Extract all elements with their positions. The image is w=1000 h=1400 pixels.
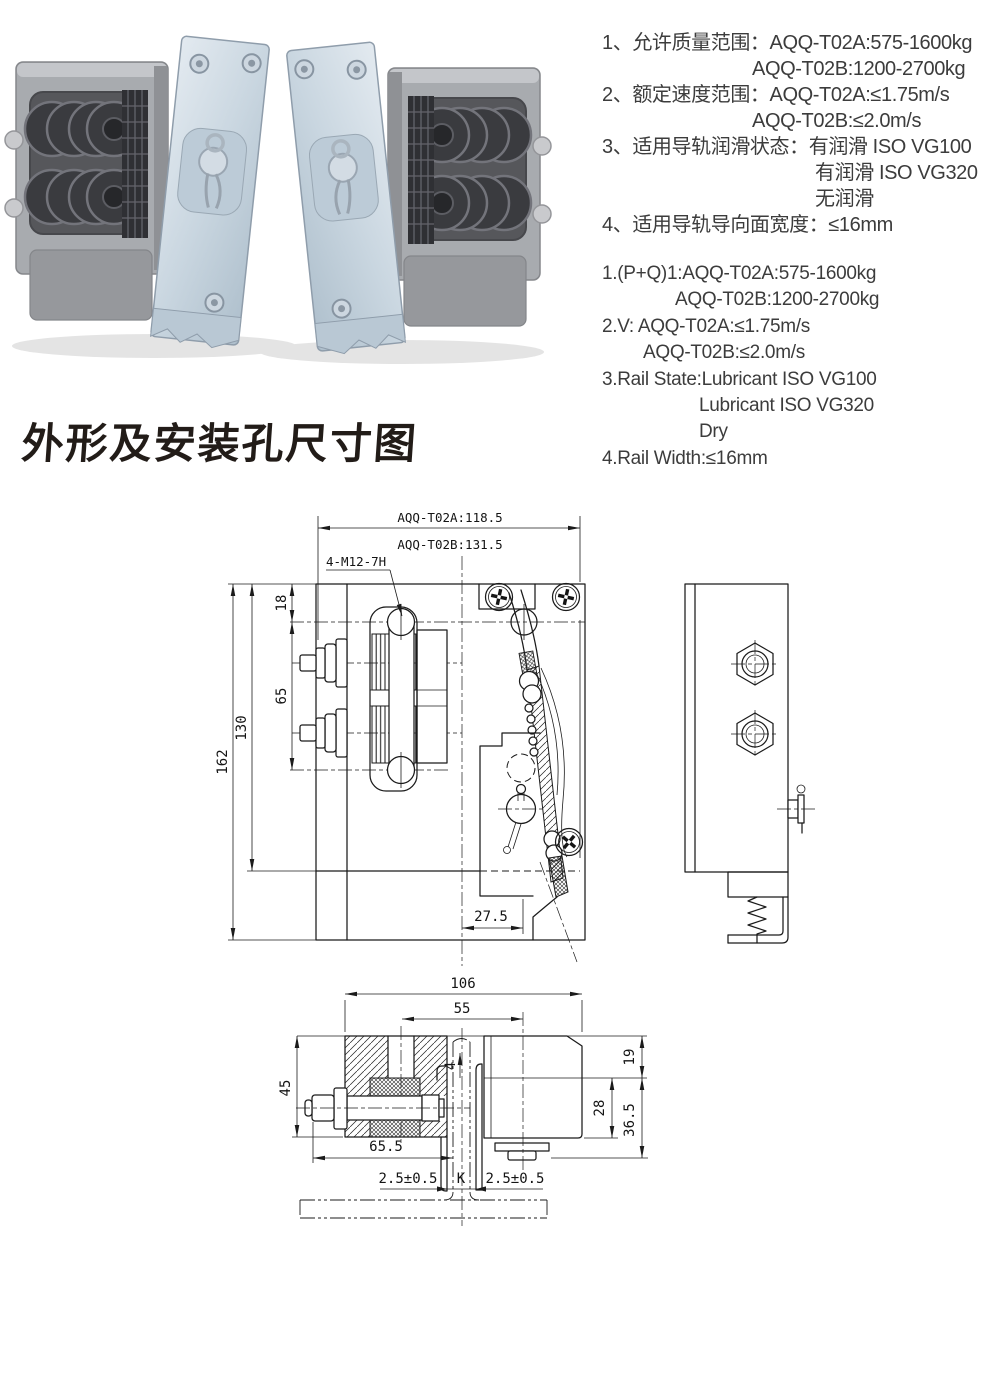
thread-callout: 4-M12-7H (326, 554, 386, 569)
wedge-mechanism (480, 590, 583, 962)
dim-width-106: 106 (450, 976, 475, 992)
spec-line: 4、适用导轨导向面宽度：≤16mm (602, 212, 978, 238)
front-view: AQQ-T02A:118.5 AQQ-T02B:131.5 4-M12-7H 1… (215, 510, 585, 966)
section-view-dimensions: 106 55 45 65.5 4 19 28 36.5 (278, 976, 648, 1192)
dim-rail-width-k: K (457, 1171, 466, 1187)
safety-gear-right-unit (260, 42, 551, 364)
dim-height-36-5: 36.5 (622, 1103, 638, 1137)
dim-height-28: 28 (592, 1100, 608, 1117)
section-view: 106 55 45 65.5 4 19 28 36.5 (278, 976, 648, 1226)
tension-bracket (728, 872, 788, 943)
dim-gap-4: 4 (443, 1062, 459, 1070)
spec-line: 4.Rail Width:≤16mm (602, 446, 879, 472)
spec-line: 无润滑 (602, 186, 978, 212)
mounting-bolt-bottom (300, 709, 347, 757)
spring-pack (370, 604, 447, 791)
spec-line: AQQ-T02B:≤2.0m/s (602, 108, 978, 134)
spec-line: 有润滑 ISO VG320 (602, 160, 978, 186)
mounting-bolt-top (300, 639, 347, 687)
spec-block-english: 1.(P+Q)1:AQQ-T02A:575-1600kg AQQ-T02B:12… (602, 261, 879, 472)
dim-overall-width-t02b: AQQ-T02B:131.5 (397, 537, 502, 552)
dim-offset-18: 18 (274, 595, 290, 612)
dim-length-65-5: 65.5 (369, 1139, 403, 1155)
dim-height-130: 130 (234, 715, 250, 740)
spec-block-chinese: 1、允许质量范围：AQQ-T02A:575-1600kg AQQ-T02B:12… (602, 30, 978, 238)
dim-offset-55: 55 (454, 1001, 471, 1017)
dim-clearance-right: 2.5±0.5 (485, 1171, 544, 1187)
hex-nut-top (731, 640, 779, 688)
spec-line: AQQ-T02B:1200-2700kg (602, 56, 978, 82)
spec-line: 1.(P+Q)1:AQQ-T02A:575-1600kg (602, 261, 879, 287)
spec-line: AQQ-T02B:1200-2700kg (602, 287, 879, 313)
drawing-section-title: 外形及安装孔尺寸图 (20, 410, 420, 471)
safety-gear-left-unit (5, 36, 296, 358)
dim-height-45: 45 (278, 1080, 294, 1097)
datasheet-page: 1、允许质量范围：AQQ-T02A:575-1600kg AQQ-T02B:12… (0, 0, 1000, 1400)
cover-screw-right (553, 584, 580, 611)
spec-line: Lubricant ISO VG320 (602, 393, 879, 419)
side-view (685, 584, 817, 943)
cover-screw-left (486, 584, 513, 611)
spec-line: 2、额定速度范围：AQQ-T02A:≤1.75m/s (602, 82, 978, 108)
spec-line: AQQ-T02B:≤2.0m/s (602, 340, 879, 366)
dimension-drawing: AQQ-T02A:118.5 AQQ-T02B:131.5 4-M12-7H 1… (200, 485, 920, 1255)
spec-line: Dry (602, 419, 879, 445)
spec-line: 2.V: AQQ-T02A:≤1.75m/s (602, 314, 879, 340)
dim-depth-19: 19 (622, 1049, 638, 1066)
dim-overall-width-t02a: AQQ-T02A:118.5 (397, 510, 502, 525)
dim-offset-27-5: 27.5 (474, 909, 508, 925)
dim-clearance-left: 2.5±0.5 (378, 1171, 437, 1187)
hex-nut-bottom (731, 710, 779, 758)
product-photo (4, 12, 552, 364)
spec-line: 1、允许质量范围：AQQ-T02A:575-1600kg (602, 30, 978, 56)
dim-spacing-65: 65 (274, 688, 290, 705)
spec-line: 3.Rail State:Lubricant ISO VG100 (602, 367, 879, 393)
dim-height-162: 162 (215, 749, 231, 774)
spec-line: 3、适用导轨润滑状态：有润滑 ISO VG100 (602, 134, 978, 160)
shoe-block-section (345, 1026, 447, 1146)
pivot-pin (777, 785, 817, 833)
